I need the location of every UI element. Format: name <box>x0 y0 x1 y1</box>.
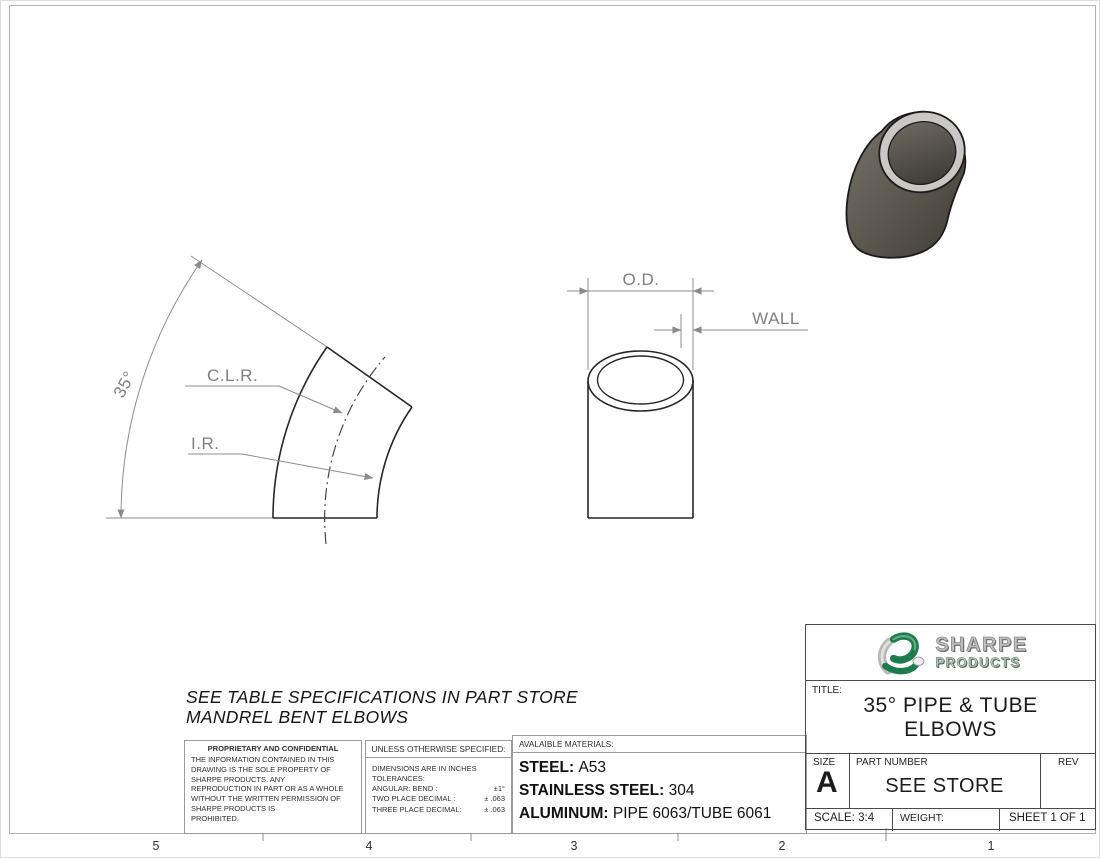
logo-word-products: PRODUCTS <box>935 656 1020 670</box>
materials-header: AVALAIBLE MATERIALS: <box>513 736 806 753</box>
elbow-inner-arc <box>377 407 412 518</box>
drawing-sheet: 35° C.L.R. I.R. <box>0 0 1100 858</box>
company-logo: SHARPE PRODUCTS <box>806 625 1095 680</box>
size-value: A <box>816 766 838 800</box>
elbow-centerline-arc <box>325 357 385 544</box>
rev-label: REV <box>1058 757 1079 768</box>
tolerance-row-value: ± .063 <box>484 794 505 804</box>
zone-label-5: 5 <box>146 839 166 853</box>
wall-label: WALL <box>752 309 800 328</box>
tolerances-line2: TOLERANCES: <box>372 774 505 784</box>
sharpe-logo-icon <box>873 630 929 676</box>
tolerance-row: ANGULAR: BEND : ±1° <box>372 784 505 794</box>
tolerance-row: TWO PLACE DECIMAL : ± .063 <box>372 794 505 804</box>
tolerance-row-value: ± .063 <box>484 805 505 815</box>
tolerance-row-value: ±1° <box>494 784 505 794</box>
proprietary-block: PROPRIETARY AND CONFIDENTIAL THE INFORMA… <box>184 740 362 834</box>
tolerance-row-label: TWO PLACE DECIMAL : <box>372 794 456 804</box>
zone-label-1: 1 <box>981 839 1001 853</box>
sheet-info: SHEET 1 OF 1 <box>1009 812 1085 824</box>
proprietary-line: SHARPE PRODUCTS. ANY <box>191 775 356 785</box>
tube-end-view: O.D. WALL <box>567 270 808 518</box>
title-block: SHARPE PRODUCTS TITLE: 35° PIPE & TUBE E… <box>805 624 1096 830</box>
zone-label-3: 3 <box>564 839 584 853</box>
elbow-profile-view: 35° C.L.R. I.R. <box>106 256 412 544</box>
drawing-title-line1: 35° PIPE & TUBE <box>806 694 1095 718</box>
angle-dimension-label: 35° <box>110 368 140 401</box>
proprietary-header: PROPRIETARY AND CONFIDENTIAL <box>185 744 361 753</box>
zone-label-2: 2 <box>772 839 792 853</box>
material-label: ALUMINUM: <box>519 805 609 822</box>
material-value: PIPE 6063/TUBE 6061 <box>613 805 772 822</box>
scale-value: SCALE: 3:4 <box>814 812 874 824</box>
tolerances-header: UNLESS OTHERWISE SPECIFIED: <box>366 741 511 758</box>
angle-dimension-arc <box>121 260 202 518</box>
tube-outer-ellipse <box>588 351 693 411</box>
drawing-title-line2: ELBOWS <box>806 718 1095 742</box>
tolerance-row-label: THREE PLACE DECIMAL: <box>372 805 462 815</box>
material-item: ALUMINUM: PIPE 6063/TUBE 6061 <box>519 803 806 826</box>
material-label: STEEL: <box>519 759 574 776</box>
spec-note: SEE TABLE SPECIFICATIONS IN PART STORE M… <box>186 688 578 727</box>
od-label: O.D. <box>623 270 660 289</box>
proprietary-body: THE INFORMATION CONTAINED IN THIS DRAWIN… <box>185 753 361 823</box>
elbow-3d-render <box>846 101 975 258</box>
tolerance-row-label: ANGULAR: BEND : <box>372 784 437 794</box>
drawing-title: 35° PIPE & TUBE ELBOWS <box>806 694 1095 741</box>
tolerances-line1: DIMENSIONS ARE IN INCHES <box>372 764 505 774</box>
logo-word-sharpe: SHARPE <box>935 635 1027 655</box>
proprietary-line: DRAWING IS THE SOLE PROPERTY OF <box>191 765 356 775</box>
spec-note-line1: SEE TABLE SPECIFICATIONS IN PART STORE <box>186 688 578 708</box>
ir-label: I.R. <box>191 434 219 453</box>
material-value: 304 <box>669 782 695 799</box>
spec-note-line2: MANDREL BENT ELBOWS <box>186 708 578 728</box>
tube-inner-ellipse <box>598 356 684 404</box>
zone-label-4: 4 <box>359 839 379 853</box>
tolerances-body: DIMENSIONS ARE IN INCHES TOLERANCES: ANG… <box>366 758 511 815</box>
tolerance-row: THREE PLACE DECIMAL: ± .063 <box>372 805 505 815</box>
part-number-value: SEE STORE <box>849 775 1040 798</box>
proprietary-line: SHARPE PRODUCTS IS <box>191 804 356 814</box>
material-label: STAINLESS STEEL: <box>519 782 664 799</box>
material-item: STEEL: A53 <box>519 757 806 780</box>
angle-extension-line <box>191 256 327 347</box>
part-number-label: PART NUMBER <box>856 757 928 768</box>
proprietary-line: REPRODUCTION IN PART OR AS A WHOLE <box>191 784 356 794</box>
material-item: STAINLESS STEEL: 304 <box>519 780 806 803</box>
clr-label: C.L.R. <box>207 366 258 385</box>
materials-list: STEEL: A53 STAINLESS STEEL: 304 ALUMINUM… <box>513 753 806 825</box>
proprietary-line: WITHOUT THE WRITTEN PERMISSION OF <box>191 794 356 804</box>
material-value: A53 <box>578 759 606 776</box>
weight-label: WEIGHT: <box>900 812 944 824</box>
tolerances-block: UNLESS OTHERWISE SPECIFIED: DIMENSIONS A… <box>365 740 512 834</box>
proprietary-line: THE INFORMATION CONTAINED IN THIS <box>191 755 356 765</box>
materials-block: AVALAIBLE MATERIALS: STEEL: A53 STAINLES… <box>512 735 807 834</box>
clr-leader-arrow <box>279 386 342 413</box>
elbow-outer-arc <box>273 347 327 518</box>
ir-leader-arrow <box>242 454 373 478</box>
proprietary-line: PROHIBITED. <box>191 814 356 824</box>
